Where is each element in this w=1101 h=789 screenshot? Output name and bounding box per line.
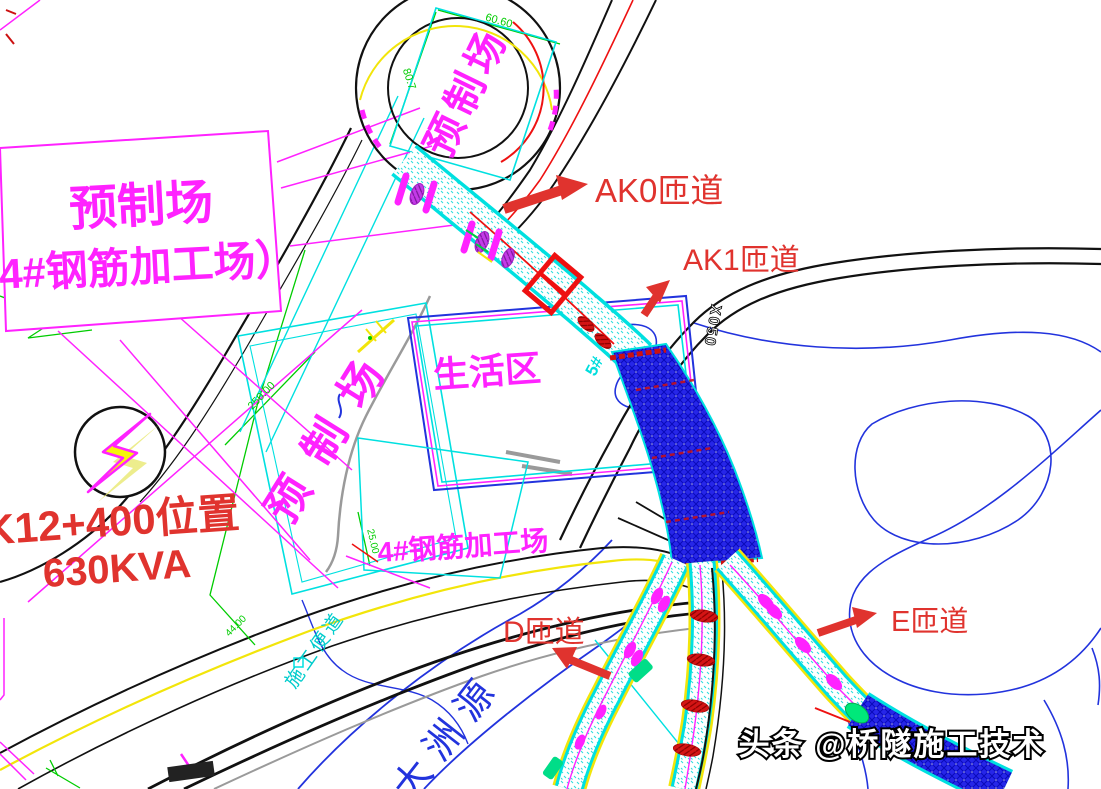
yard-box-line1: 预制场	[68, 176, 215, 236]
precast-vertical-label: 预制场	[257, 332, 407, 531]
lightning-icon	[75, 407, 165, 502]
rebar-yard-label: 4#钢筋加工场	[376, 524, 549, 568]
road-code-label: X050	[700, 303, 724, 348]
rebar-yard-outline	[346, 438, 528, 588]
ak0-arrow-head	[556, 175, 588, 200]
drawing-canvas: 60.60 80.7 250.00 44.00 25.00 预制场 （4#钢筋加…	[0, 0, 1101, 789]
watermark: 头条 @桥隧施工技术	[739, 727, 1046, 762]
stray-marks	[6, 10, 16, 44]
power-line1: K12+400位置	[0, 489, 241, 554]
ramp-annotations: AK0匝道 AK1匝道 D匝道 E匝道	[503, 172, 968, 676]
e-label: E匝道	[891, 605, 968, 638]
power-line2: 630KVA	[41, 542, 192, 596]
bridge	[610, 344, 762, 566]
cad-site-plan: 60.60 80.7 250.00 44.00 25.00 预制场 （4#钢筋加…	[0, 0, 1101, 789]
ak1-label: AK1匝道	[683, 244, 800, 277]
yard-box-callout: 预制场 （4#钢筋加工场）	[0, 131, 299, 331]
pier-label: 5#	[582, 353, 608, 379]
existing-roads	[0, 0, 1101, 789]
living-area-label: 生活区	[432, 347, 543, 395]
leader-lines	[0, 0, 478, 780]
d-label: D匝道	[503, 616, 585, 649]
e-arrow-head	[852, 607, 877, 628]
ak0-label: AK0匝道	[595, 172, 723, 209]
power-location-label: K12+400位置 630KVA	[0, 489, 241, 596]
